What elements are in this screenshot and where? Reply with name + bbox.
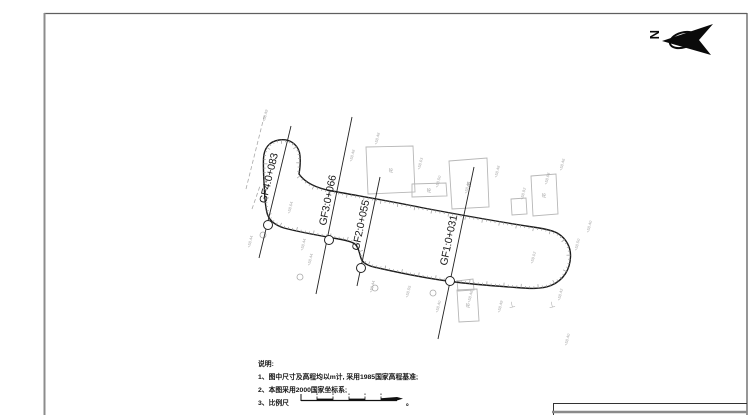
- spot-elevation: +58.46: [466, 289, 474, 303]
- north-arrow: N: [647, 24, 713, 55]
- station-label: GF3:0+066: [317, 174, 339, 227]
- note-line-3: 3、比例尺: [258, 398, 289, 407]
- spot-elevation: +59.02: [529, 250, 537, 264]
- station-label: GF1:0+031: [438, 214, 460, 267]
- spot-elevation: +58.46: [558, 157, 566, 171]
- spot-elevation: +58.68: [543, 171, 551, 185]
- section-marker-circle: [357, 264, 366, 273]
- spot-elevation: +58.44: [299, 237, 307, 251]
- spot-elevation: +58.50: [434, 174, 442, 188]
- scale-bar-end-arrow: [381, 397, 403, 401]
- spot-elevation: +58.44: [306, 252, 314, 266]
- north-label: N: [647, 30, 662, 39]
- spot-elevation: +58.40: [563, 332, 571, 346]
- spot-elevation: +58.49: [261, 108, 269, 122]
- sheet-frame: [44, 13, 747, 415]
- section-marker-circle: [264, 221, 273, 230]
- scale-bar-period: 。: [406, 400, 413, 407]
- spot-elevation: +58.64: [286, 200, 294, 214]
- scale-bar-numeral-mark: [380, 394, 382, 395]
- tree-circle: [297, 274, 303, 280]
- spot-elevation: +58.48: [348, 148, 356, 162]
- building-label: 砼: [427, 187, 432, 193]
- plan-content: 砼砼砼砼砼+58.49+58.44+58.44+58.64+58.48+58.4…: [246, 108, 593, 346]
- scale-bar-numeral-mark: [364, 394, 366, 395]
- title-block: [552, 403, 747, 415]
- tee-mark: ⊥: [548, 300, 557, 310]
- spot-elevation: +58.63: [416, 156, 424, 170]
- spot-elevation: +58.49: [496, 299, 504, 313]
- spot-elevation: +58.48: [373, 131, 381, 145]
- building-label: 砼: [389, 167, 394, 173]
- tee-mark: ⊥: [508, 300, 517, 310]
- scale-bar-numeral-mark: [316, 394, 318, 395]
- spot-elevation: +58.44: [246, 234, 254, 248]
- note-line-2: 2、本图采用2000国家坐标系;: [258, 385, 347, 394]
- spot-elevation: +58.48: [493, 164, 501, 178]
- note-line-1: 1、图中尺寸及高程均以m计, 采用1985国家高程基准;: [258, 372, 418, 381]
- drawing-sheet: N 砼砼砼砼砼+58.49+58.44+58.44+58.64+58.48+58…: [0, 0, 755, 415]
- station-label: GF2:0+055: [350, 199, 372, 252]
- section-marker-circle: [446, 277, 455, 286]
- notes-block: 说明: 1、图中尺寸及高程均以m计, 采用1985国家高程基准; 2、本图采用2…: [258, 359, 418, 407]
- station-label: GF4:0+083: [257, 152, 281, 205]
- scale-bar-segment: [349, 399, 365, 401]
- section-marker-circle: [325, 236, 334, 245]
- scale-bar-numeral-mark: [332, 394, 334, 395]
- building-outline: [511, 198, 527, 215]
- spot-elevation: +58.50: [573, 237, 581, 251]
- notes-title: 说明:: [258, 359, 274, 368]
- spot-elevation: +58.55: [404, 284, 412, 298]
- scale-bar-segment: [317, 399, 333, 401]
- spot-elevation: +58.42: [556, 287, 564, 301]
- tree-circle: [430, 290, 436, 296]
- building-label: 砼: [542, 192, 547, 198]
- scale-bar-numeral-mark: [348, 394, 350, 395]
- spot-elevation: +58.40: [434, 299, 442, 313]
- site-plan-svg: N 砼砼砼砼砼+58.49+58.44+58.44+58.64+58.48+58…: [0, 0, 755, 415]
- spot-elevation: +58.40: [585, 219, 593, 233]
- scale-bar: [301, 394, 403, 402]
